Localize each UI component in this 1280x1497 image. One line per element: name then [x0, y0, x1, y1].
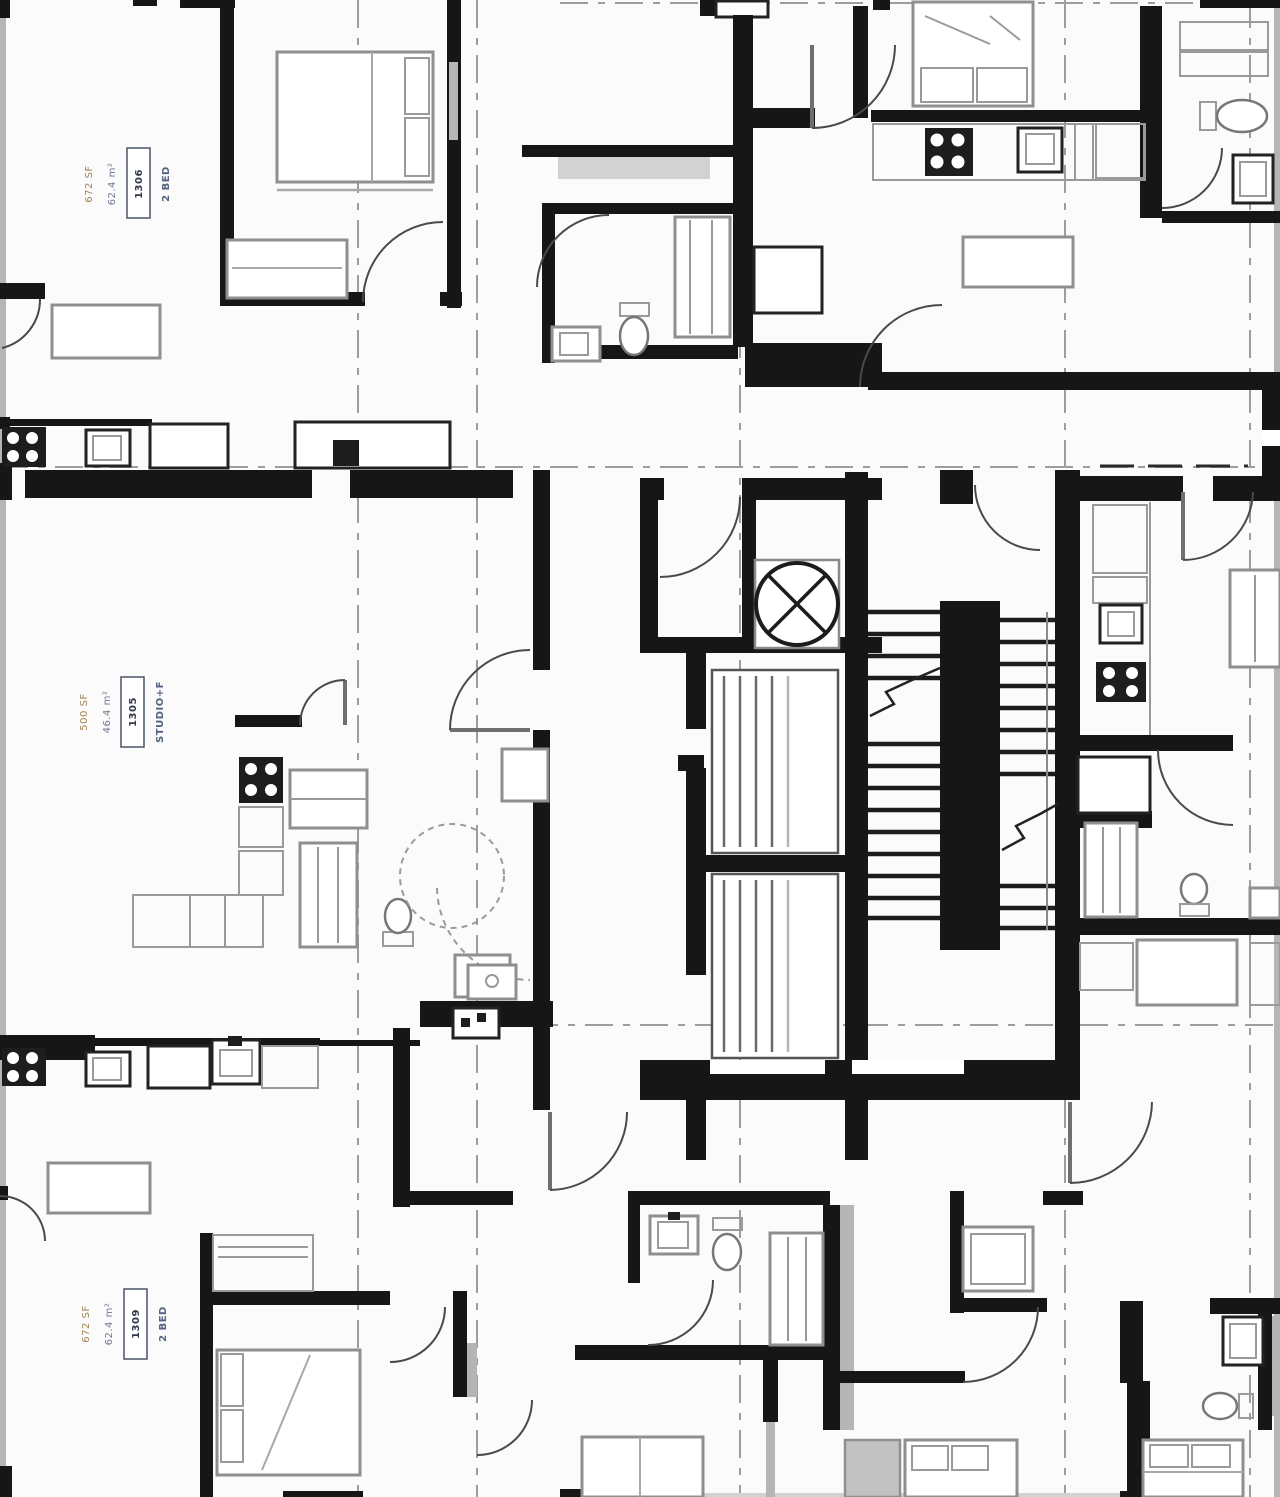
sink — [1233, 155, 1273, 203]
kitchen — [2, 422, 450, 468]
unit-top-right — [860, 2, 1273, 387]
refrigerator — [1096, 124, 1144, 178]
door-swing-arc — [1162, 148, 1222, 208]
closet — [213, 1235, 313, 1291]
closet — [502, 749, 548, 801]
toilet — [1200, 100, 1267, 132]
door-swing-arc — [2, 299, 40, 348]
unit-area-m2: 62.4 m² — [107, 163, 118, 206]
dining-table — [52, 305, 160, 358]
door-swing-arc — [975, 485, 1040, 550]
toilet — [620, 303, 649, 355]
stair-break-mark — [870, 668, 940, 716]
shower — [675, 217, 730, 337]
kitchen-stove — [1096, 662, 1146, 702]
entry-door — [450, 650, 530, 730]
toilet — [383, 899, 413, 946]
sink — [1250, 888, 1280, 918]
closet — [845, 1440, 900, 1497]
tall-cabinet — [300, 843, 357, 947]
unit-type: STUDIO+F — [155, 681, 166, 743]
unit-area-sf: 500 SF — [79, 693, 90, 730]
entry-door — [1183, 492, 1253, 560]
unit-area-sf: 672 SF — [84, 165, 95, 202]
shower — [1085, 823, 1137, 917]
sink — [552, 327, 600, 361]
closet — [1078, 757, 1150, 813]
building-core — [640, 470, 1280, 1160]
dashed-table-circle — [400, 824, 504, 928]
oven — [1100, 605, 1142, 643]
door-swing-arc — [363, 222, 443, 302]
sink — [212, 1036, 260, 1084]
bed — [1143, 1440, 1243, 1497]
unit-type: 2 BED — [161, 166, 172, 202]
closet — [227, 240, 347, 298]
unit-label-bottom-left: 672 SF 62.4 m² 1309 2 BED — [81, 1289, 169, 1359]
unit-area-m2: 46.4 m² — [102, 691, 113, 734]
kitchen — [873, 124, 1145, 180]
door-swing-arc — [0, 1196, 45, 1241]
corridor-door — [550, 1112, 627, 1190]
kitchen-door — [300, 680, 345, 725]
dresser — [913, 2, 1033, 106]
toilet — [1180, 874, 1209, 916]
unit-area-m2: 62.4 m² — [104, 1303, 115, 1346]
door-swing-arc — [648, 1280, 713, 1345]
toilet — [713, 1218, 742, 1270]
unit-bottom-right — [845, 1102, 1263, 1497]
elevator-cab-2 — [712, 874, 838, 1058]
floor-plan-sheet: 672 SF 62.4 m² 1306 2 BED 500 SF 46.4 m²… — [0, 0, 1280, 1497]
shower — [963, 1227, 1033, 1291]
unit-label-middle-left: 500 SF 46.4 m² 1305 STUDIO+F — [79, 677, 166, 747]
sink — [1223, 1317, 1263, 1365]
bathroom — [552, 217, 730, 361]
floor-plan-svg: 672 SF 62.4 m² 1306 2 BED 500 SF 46.4 m²… — [0, 0, 1280, 1497]
sink — [650, 1212, 698, 1254]
shower — [770, 1233, 823, 1345]
bed — [582, 1437, 703, 1497]
unit-bottom-left — [0, 1036, 532, 1475]
bathroom — [648, 1212, 823, 1345]
kitchen-stove — [2, 427, 46, 467]
elevator-cab-1 — [712, 670, 838, 853]
interior-walls — [0, 0, 1280, 1497]
unit-area-sf: 672 SF — [81, 1305, 92, 1342]
dining-table — [963, 237, 1073, 287]
kitchen — [1093, 502, 1280, 735]
door-swing-arc — [660, 497, 740, 577]
kitchen — [133, 715, 302, 947]
bed — [217, 1350, 360, 1475]
unit-number: 1309 — [131, 1309, 142, 1339]
unit-label-top-left: 672 SF 62.4 m² 1306 2 BED — [84, 148, 172, 218]
door-swing-arc — [963, 1307, 1038, 1382]
bedroom-furniture — [1080, 940, 1280, 1005]
unit-number: 1306 — [134, 169, 145, 199]
kitchen-stove — [2, 1048, 46, 1086]
hall-closet — [754, 247, 822, 313]
door-swing-arc — [1158, 750, 1233, 825]
bathroom — [1162, 22, 1273, 208]
door-swing-arc — [390, 1307, 445, 1362]
dining-table — [48, 1163, 150, 1213]
unit-number: 1305 — [128, 697, 139, 727]
bathroom — [1203, 1317, 1263, 1419]
vent-shaft-symbol — [755, 560, 839, 648]
refrigerator — [1093, 505, 1147, 573]
kitchen-stove — [925, 128, 973, 176]
unit-middle-left-studio — [133, 650, 548, 997]
stair-break-mark — [1002, 804, 1058, 850]
entry-door — [1070, 1102, 1152, 1183]
sink — [468, 965, 516, 999]
bed — [277, 52, 433, 190]
kitchen-stove — [239, 757, 283, 803]
unit-type: 2 BED — [158, 1306, 169, 1342]
bed — [905, 1440, 1017, 1497]
toilet — [1203, 1393, 1253, 1419]
